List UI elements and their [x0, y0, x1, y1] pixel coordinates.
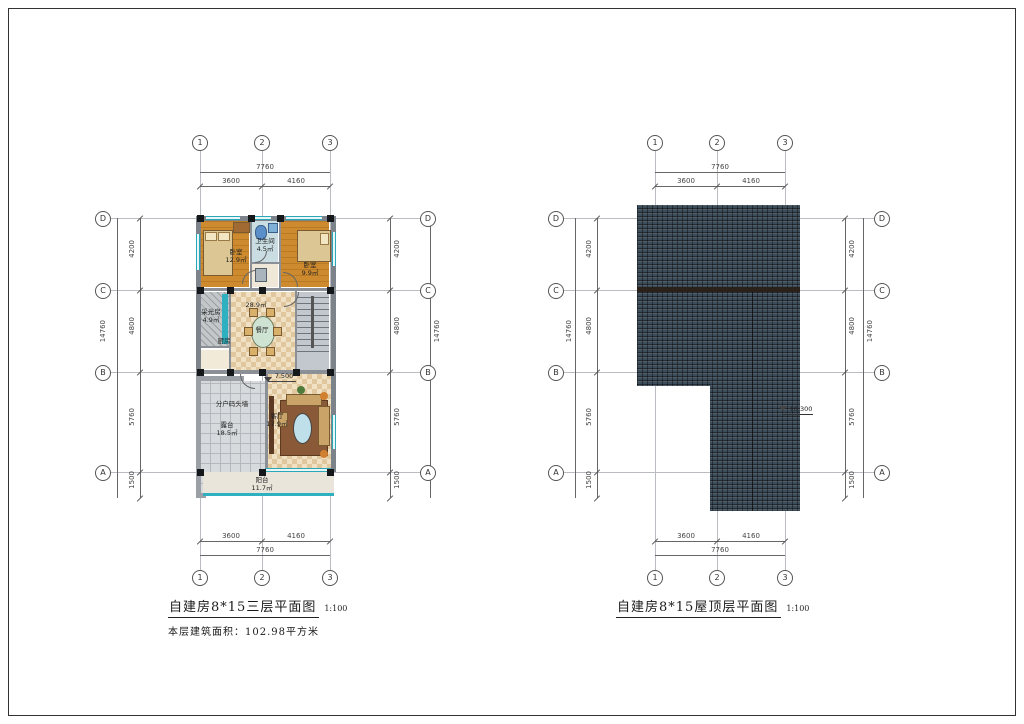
- axis-bubble-D: D: [874, 211, 890, 227]
- axis-bubble-3: 3: [777, 570, 793, 586]
- dim-label: 7760: [711, 547, 729, 554]
- dim-label: 4160: [742, 178, 760, 185]
- axis-bubble-2: 2: [709, 135, 725, 151]
- plan-scale: 1:100: [786, 604, 809, 613]
- roof-tiles: [637, 205, 800, 511]
- dim-label: 4800: [586, 317, 593, 335]
- axis-bubble-A: A: [548, 465, 564, 481]
- axis-bubble-1: 1: [647, 570, 663, 586]
- dim-tick: [842, 495, 848, 501]
- dim-label: 3600: [677, 178, 695, 185]
- dim-label: 3600: [677, 533, 695, 540]
- dim-tick: [594, 495, 600, 501]
- dim-label: 4160: [742, 533, 760, 540]
- roof-valley-line: [752, 292, 753, 511]
- axis-bubble-C: C: [874, 283, 890, 299]
- dim-line: [655, 172, 785, 173]
- plan-title-block: 自建房8*15屋顶层平面图1:100: [616, 596, 809, 615]
- dim-label: 1500: [586, 471, 593, 489]
- dim-line: [597, 218, 598, 498]
- level-marker-icon: [779, 406, 787, 411]
- dim-label: 4800: [849, 317, 856, 335]
- elevation-label: 10.300: [790, 406, 813, 414]
- drawing-sheet: 7760 3600 4160 3600 4160 7760 4200 4800 …: [0, 0, 1024, 724]
- dim-label: 5760: [586, 408, 593, 426]
- dim-label: 4200: [586, 240, 593, 258]
- dim-label: 5760: [849, 408, 856, 426]
- axis-bubble-B: B: [548, 365, 564, 381]
- dim-line: [655, 186, 785, 187]
- dim-line: [575, 218, 576, 498]
- axis-bubble-3: 3: [777, 135, 793, 151]
- dim-label: 14760: [566, 320, 573, 342]
- dim-line: [863, 218, 864, 498]
- roof-ridge-line: [637, 287, 800, 292]
- plan-title: 自建房8*15屋顶层平面图: [616, 600, 781, 618]
- dim-label: 4200: [849, 240, 856, 258]
- axis-bubble-B: B: [874, 365, 890, 381]
- axis-bubble-C: C: [548, 283, 564, 299]
- axis-bubble-2: 2: [709, 570, 725, 586]
- axis-bubble-A: A: [874, 465, 890, 481]
- axis-bubble-D: D: [548, 211, 564, 227]
- dim-label: 1500: [849, 471, 856, 489]
- dim-line: [655, 555, 785, 556]
- roof-plan: 7760 3600 4160 3600 4160 7760 4200 4800 …: [0, 0, 1024, 724]
- dim-line: [655, 541, 785, 542]
- elevation-line: [783, 414, 813, 415]
- axis-bubble-1: 1: [647, 135, 663, 151]
- dim-label: 7760: [711, 164, 729, 171]
- dim-label: 14760: [867, 320, 874, 342]
- dim-line: [845, 218, 846, 498]
